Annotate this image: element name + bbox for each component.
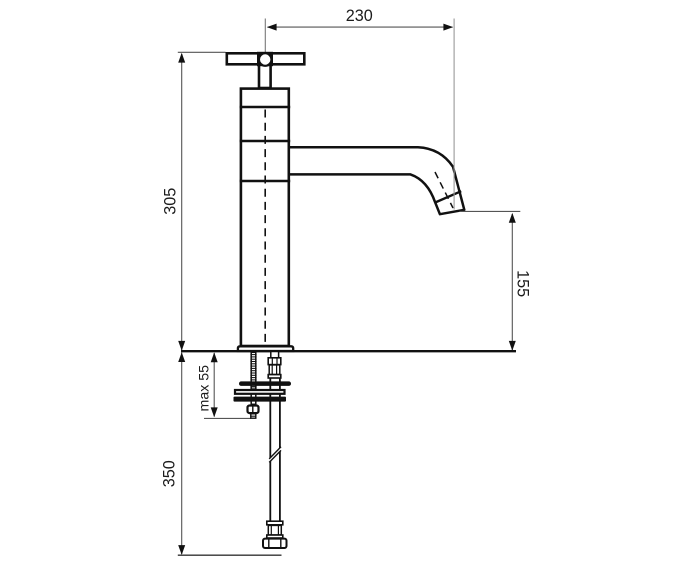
svg-text:350: 350	[160, 460, 178, 487]
svg-text:155: 155	[514, 270, 532, 297]
svg-text:305: 305	[161, 188, 179, 215]
svg-text:230: 230	[346, 7, 373, 25]
svg-text:max 55: max 55	[197, 365, 213, 412]
